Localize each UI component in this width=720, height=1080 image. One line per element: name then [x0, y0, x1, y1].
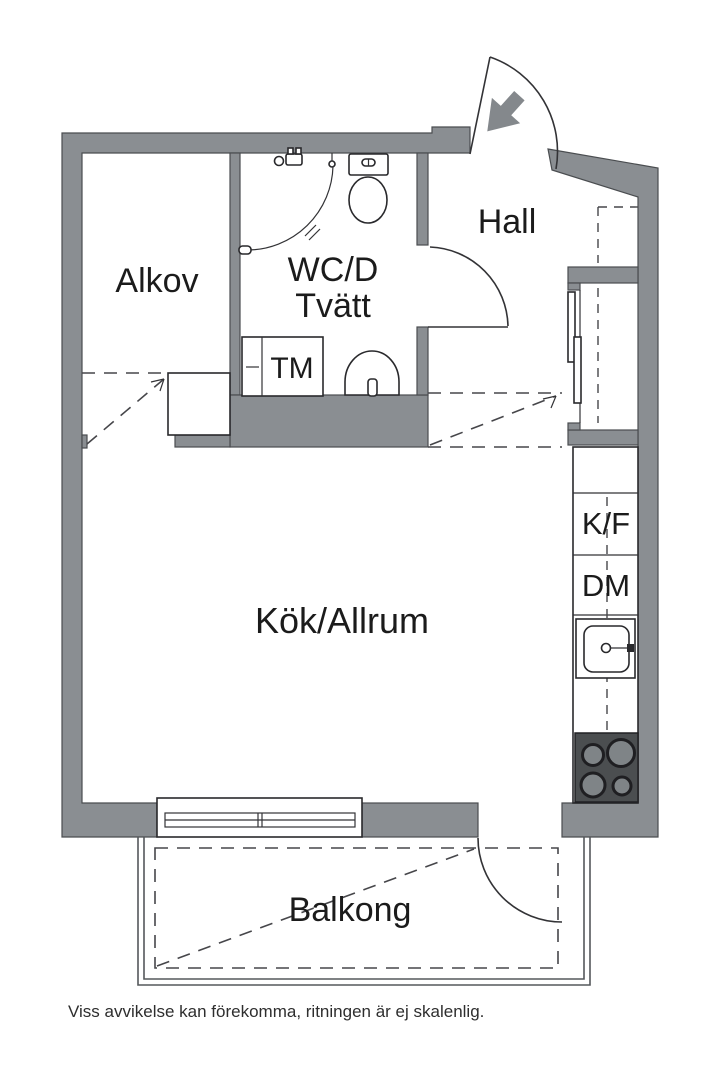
hall-kitchen-opening — [428, 393, 562, 447]
walls — [62, 127, 658, 837]
floorplan-canvas: Alkov WC/D Tvätt TM Hall K/F DM Kök/Allr… — [0, 0, 720, 1080]
wall-wc-right-upper — [417, 153, 428, 245]
appliance-label-tm: TM — [270, 352, 313, 385]
hall-closet — [568, 207, 638, 423]
floorplan-page: Alkov WC/D Tvätt TM Hall K/F DM Kök/Allr… — [0, 0, 720, 1080]
window-symbol — [157, 798, 362, 837]
wall-closet-bottom-stub — [568, 430, 638, 445]
wall-left-notch — [82, 435, 87, 448]
closet-sliding-doors — [568, 292, 581, 403]
appliance-label-kf: K/F — [582, 506, 630, 541]
wardrobe-cabinet — [168, 373, 230, 435]
wall-wc-bottom — [230, 395, 428, 447]
kitchen-counter — [573, 447, 638, 803]
room-label-alkov: Alkov — [115, 262, 198, 300]
room-label-wc-line2: Tvätt — [295, 287, 371, 325]
room-label-balcony: Balkong — [289, 891, 412, 929]
wall-wc-right-lower — [417, 327, 428, 395]
wall-bottom-mid — [362, 803, 478, 837]
stove-icon — [575, 733, 638, 802]
wall-closet-top-stub — [568, 267, 638, 283]
entrance — [470, 57, 558, 169]
disclaimer-text: Viss avvikelse kan förekomma, ritningen … — [68, 1002, 484, 1021]
room-label-wc-line1: WC/D — [288, 251, 379, 289]
wall-alkov-wc-divider — [230, 153, 240, 395]
labels: Alkov WC/D Tvätt TM Hall K/F DM Kök/Allr… — [68, 203, 630, 1021]
alkov-opening-diagonal — [87, 379, 164, 444]
shower-curtain-icon — [239, 153, 335, 254]
appliance-label-dm: DM — [582, 568, 630, 603]
wall-left-top-bottom — [62, 127, 470, 837]
opening-arrowhead — [543, 396, 556, 408]
room-label-kitchen: Kök/Allrum — [255, 600, 429, 641]
entrance-door-leaf — [470, 57, 490, 154]
wall-alkov-stub — [175, 435, 230, 447]
wc-door-arc — [430, 247, 508, 326]
balcony-door-arc — [478, 838, 562, 922]
toilet-icon — [349, 154, 388, 223]
alkov-area — [82, 373, 230, 444]
wall-closet-top-notch — [568, 283, 580, 290]
wall-closet-bottom-notch — [568, 423, 580, 430]
wc-sink-icon — [345, 351, 399, 396]
room-label-hall: Hall — [478, 203, 537, 241]
kitchen-sink-icon — [576, 619, 635, 678]
